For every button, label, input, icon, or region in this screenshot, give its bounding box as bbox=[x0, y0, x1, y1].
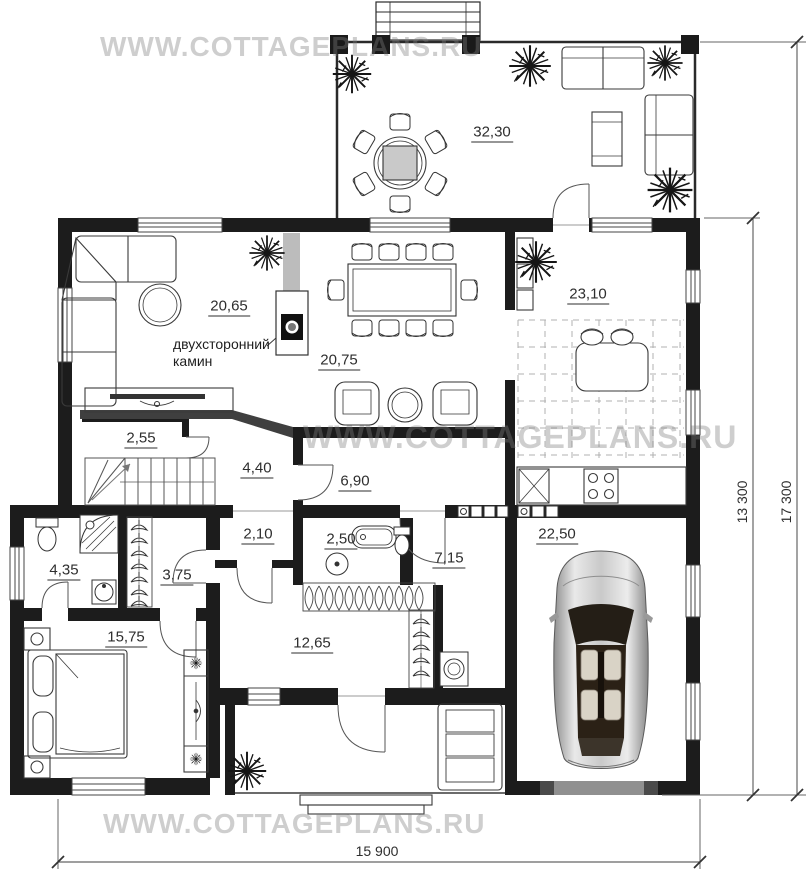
room-area-label-hall: 4,40 bbox=[240, 460, 273, 479]
terrace-furniture bbox=[352, 47, 693, 213]
room-area-label-utility-room: 7,15 bbox=[432, 550, 465, 569]
porch bbox=[235, 704, 505, 814]
room-area-label-garage: 22,50 bbox=[536, 526, 578, 545]
bedroom-furniture bbox=[24, 628, 208, 778]
floor-plan-page: WWW.COTTAGEPLANS.RU WWW.COTTAGEPLANS.RU … bbox=[0, 0, 809, 875]
room-area-label-pantry: 2,55 bbox=[124, 430, 157, 449]
room-area-label-kitchen: 23,10 bbox=[567, 286, 609, 305]
room-area-label-terrace: 32,30 bbox=[471, 124, 513, 143]
room-area-label-wc: 2,10 bbox=[241, 526, 274, 545]
stove-icon bbox=[584, 469, 618, 503]
stairs bbox=[85, 458, 215, 505]
dimension-total-width: 15 900 bbox=[356, 843, 399, 859]
dining-furniture bbox=[328, 244, 478, 426]
room-area-label-dining-room: 20,75 bbox=[318, 352, 360, 371]
room-area-label-bedroom: 15,75 bbox=[105, 629, 147, 648]
water-heater bbox=[440, 652, 468, 686]
room-area-label-wardrobe: 3,75 bbox=[160, 567, 193, 586]
room-area-label-entry-hall: 12,65 bbox=[291, 635, 333, 654]
car bbox=[549, 551, 653, 769]
living-room-furniture bbox=[62, 236, 233, 412]
fireplace-note: двухсторонний камин bbox=[173, 336, 270, 370]
room-area-label-master-bathroom: 4,35 bbox=[47, 562, 80, 581]
dimension-total-depth: 17 300 bbox=[778, 481, 794, 524]
shower-icon bbox=[80, 515, 118, 553]
floor-plan-drawing bbox=[0, 0, 809, 875]
room-area-label-living-room: 20,65 bbox=[208, 298, 250, 317]
sanitary-fixtures bbox=[36, 515, 410, 604]
garage-door bbox=[540, 781, 658, 795]
dimension-main-depth: 13 300 bbox=[734, 481, 750, 524]
room-area-label-corridor: 6,90 bbox=[338, 473, 371, 492]
room-area-label-bathroom: 2,50 bbox=[324, 531, 357, 550]
porch-bench bbox=[438, 704, 502, 790]
terrace-structure bbox=[330, 2, 699, 218]
dresser bbox=[184, 650, 208, 772]
